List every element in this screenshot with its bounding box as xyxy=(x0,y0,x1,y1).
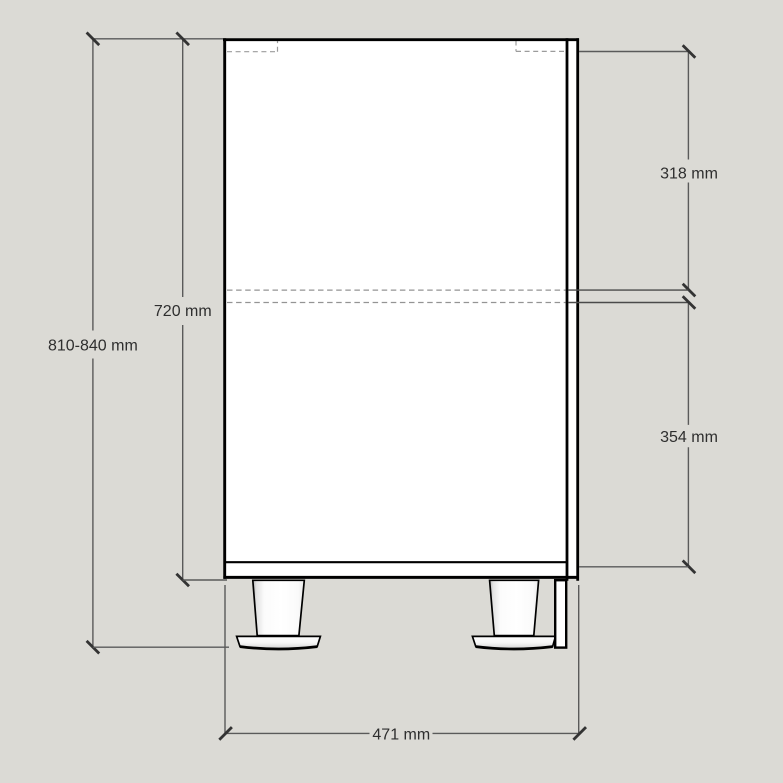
svg-text:471 mm: 471 mm xyxy=(372,727,430,744)
svg-text:810-840 mm: 810-840 mm xyxy=(48,337,138,354)
svg-text:720 mm: 720 mm xyxy=(154,303,212,320)
svg-text:354 mm: 354 mm xyxy=(660,429,718,446)
svg-text:318 mm: 318 mm xyxy=(660,166,718,183)
